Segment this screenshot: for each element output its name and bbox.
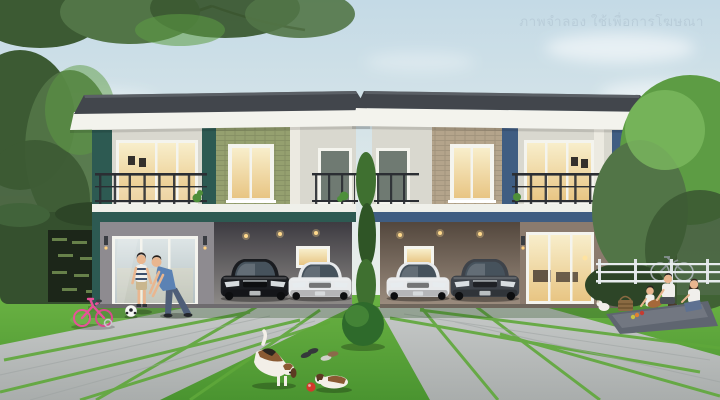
carport-right: [380, 222, 520, 306]
red-ball: [306, 382, 315, 391]
picture-frame: [581, 159, 588, 168]
carport-left: [214, 222, 352, 306]
picture-frame: [571, 157, 578, 166]
picture-frame: [139, 158, 146, 167]
house-left-lower-glass-door: [112, 236, 198, 306]
dog-ear: [291, 368, 297, 378]
picture-frame: [128, 156, 135, 165]
floor-slab-band: [92, 204, 356, 212]
house-right-living-glass-door: [526, 232, 594, 304]
house-right-plinth: [380, 304, 630, 308]
pilaster-white: [290, 126, 300, 212]
interior-lamp: [583, 256, 588, 261]
house-right-upper-glass-door: [524, 140, 594, 204]
bike-seat: [96, 299, 102, 302]
brick-wall-green: [216, 126, 290, 206]
accent-column-teal: [202, 126, 216, 212]
house-left: [70, 91, 370, 308]
sofa-silhouette: [556, 272, 578, 282]
house-left-upper-glass-door: [116, 140, 198, 204]
dog-tail: [263, 331, 265, 344]
floor-slab-band: [372, 204, 630, 212]
brick-wall-tan: [432, 126, 502, 206]
scene: ภาพจำลอง ใช้เพื่อการโฆษณา: [0, 0, 720, 400]
architectural-render: ภาพจำลอง ใช้เพื่อการโฆษณา: [0, 0, 720, 400]
accent-band-teal: [92, 212, 356, 222]
accent-band-blue: [372, 212, 630, 222]
watermark-text: ภาพจำลอง ใช้เพื่อการโฆษณา: [519, 12, 704, 29]
hedge-between-houses: [356, 152, 376, 311]
